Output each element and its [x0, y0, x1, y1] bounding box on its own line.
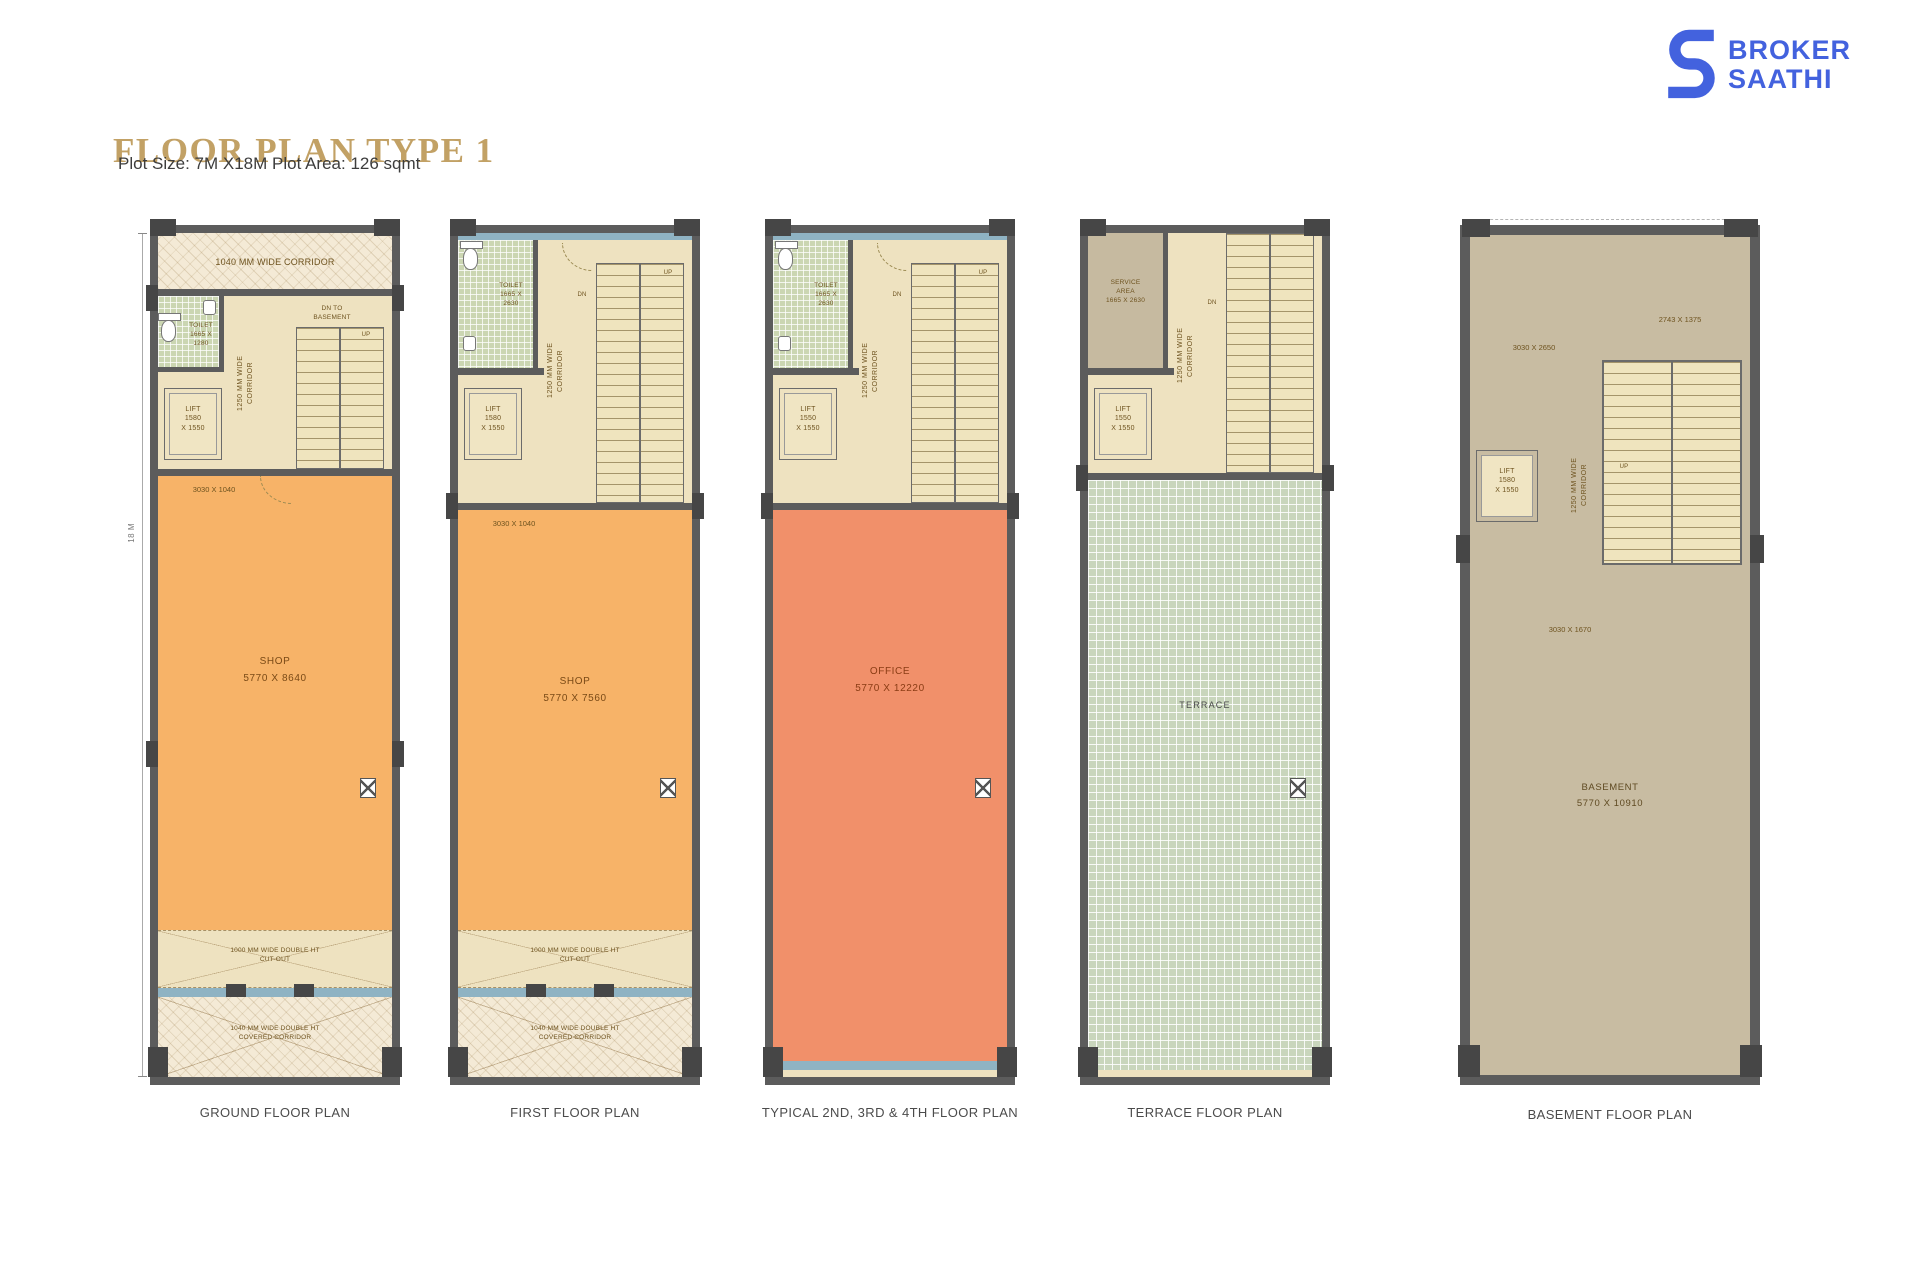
- riser-box-icon: [1290, 778, 1306, 798]
- logo-line2: SAATHI: [1728, 65, 1851, 93]
- column-block: [1456, 535, 1470, 563]
- glazing-strip: [773, 233, 1007, 240]
- top-dimension-dash: [1470, 219, 1750, 220]
- office-area: [773, 510, 1007, 1061]
- toilet-wc-icon: [161, 320, 176, 342]
- covered-corridor-label: 1040 MM WIDE DOUBLE HT COVERED CORRIDOR: [158, 1025, 392, 1043]
- column-block: [1304, 219, 1330, 236]
- lift-label: LIFT 1550 X 1550: [1094, 405, 1152, 433]
- entrance-corridor-label: 1040 MM WIDE CORRIDOR: [158, 256, 392, 268]
- covered-corridor: 1040 MM WIDE DOUBLE HT COVERED CORRIDOR: [158, 997, 392, 1077]
- glazing-strip: [773, 1061, 1007, 1070]
- logo-line1: BROKER: [1728, 36, 1851, 64]
- terrace-floor-plan: SERVICE AREA 1665 X 2630 LIFT 1550 X 155…: [1080, 225, 1330, 1085]
- plan-caption: GROUND FLOOR PLAN: [138, 1105, 412, 1120]
- dn-to-basement-label: DN TO BASEMENT: [280, 305, 384, 323]
- first-floor-plan: TOILET 1665 X 2630 LIFT 1580 X 1550 1250…: [450, 225, 700, 1085]
- column-block: [1007, 493, 1019, 519]
- plan-caption: BASEMENT FLOOR PLAN: [1450, 1107, 1770, 1122]
- toilet-label: TOILET 1665 X 2630: [803, 282, 849, 308]
- column-block: [1724, 219, 1758, 237]
- office-label: OFFICE 5770 X 12220: [773, 663, 1007, 697]
- double-height-cutout: 1000 MM WIDE DOUBLE HT CUT-OUT: [158, 930, 392, 988]
- column-block: [1080, 219, 1106, 236]
- shop-area: [158, 476, 392, 930]
- column-block: [761, 493, 773, 519]
- door-arc: [877, 243, 907, 271]
- dimension-tick: [138, 1076, 147, 1077]
- terrace-label: TERRACE: [1088, 698, 1322, 713]
- column-block: [1078, 1047, 1098, 1077]
- plot-size-subtitle: Plot Size: 7M X18M Plot Area: 126 sqmt: [118, 154, 420, 174]
- wall: [158, 289, 392, 296]
- stair-divider: [1269, 234, 1271, 472]
- lift-label: LIFT 1580 X 1550: [1476, 467, 1538, 495]
- up-label: UP: [656, 269, 680, 277]
- brokersaathi-monogram-icon: [1660, 24, 1722, 105]
- column-block: [446, 493, 458, 519]
- column-block: [382, 1047, 402, 1077]
- glazing-strip: [458, 988, 692, 997]
- staircase: [1226, 233, 1314, 473]
- column-block: [448, 1047, 468, 1077]
- column-block: [763, 1047, 783, 1077]
- column-block: [682, 1047, 702, 1077]
- plot-depth-label: 18 M: [126, 523, 137, 543]
- column-block: [997, 1047, 1017, 1077]
- logo-text: BROKER SAATHI: [1728, 36, 1851, 93]
- stair-divider: [954, 264, 956, 502]
- toilet-sink-icon: [203, 300, 216, 315]
- toilet-sink-icon: [463, 336, 476, 351]
- column-block: [1322, 465, 1334, 491]
- lift-label: LIFT 1550 X 1550: [779, 405, 837, 433]
- basement-dim-left: 3030 X 2650: [1482, 343, 1586, 352]
- wall: [458, 503, 692, 510]
- column-block: [146, 285, 158, 311]
- wall: [773, 368, 859, 375]
- terrace-area: [1088, 480, 1322, 1070]
- corridor-label: 1250 MM WIDE CORRIDOR: [1570, 400, 1590, 570]
- corridor-label: 1250 MM WIDE CORRIDOR: [546, 278, 566, 463]
- toilet-sink-icon: [778, 336, 791, 351]
- column-block: [1458, 1045, 1480, 1077]
- service-area-label: SERVICE AREA 1665 X 2630: [1092, 279, 1159, 305]
- ground-floor-plan: 18 M 1040 MM WIDE CORRIDOR TOILET 1665 X…: [150, 225, 400, 1085]
- toilet-room: TOILET 1665 X 2630: [773, 240, 853, 368]
- shop-label: SHOP 5770 X 7560: [458, 673, 692, 707]
- dimension-tick: [138, 233, 147, 234]
- lift-label: LIFT 1580 X 1550: [464, 405, 522, 433]
- corridor-label: 1250 MM WIDE CORRIDOR: [236, 303, 256, 463]
- covered-corridor: 1040 MM WIDE DOUBLE HT COVERED CORRIDOR: [458, 997, 692, 1077]
- corridor-label: 1250 MM WIDE CORRIDOR: [1176, 258, 1196, 453]
- toilet-wc-icon: [463, 248, 478, 270]
- toilet-label: TOILET 1665 X 2630: [488, 282, 534, 308]
- plan-caption: TERRACE FLOOR PLAN: [1068, 1105, 1342, 1120]
- column-block: [450, 219, 476, 236]
- cutout-label: 1000 MM WIDE DOUBLE HT CUT-OUT: [158, 947, 392, 965]
- riser-box-icon: [360, 778, 376, 798]
- up-label: UP: [354, 331, 378, 339]
- toilet-room: TOILET 1665 X 1280: [158, 296, 224, 372]
- corridor-label: 1250 MM WIDE CORRIDOR: [861, 278, 881, 463]
- column-block: [146, 741, 158, 767]
- column-block: [148, 1047, 168, 1077]
- up-label: UP: [971, 269, 995, 277]
- cutout-label: 1000 MM WIDE DOUBLE HT CUT-OUT: [458, 947, 692, 965]
- stair-divider: [639, 264, 641, 502]
- covered-corridor-label: 1040 MM WIDE DOUBLE HT COVERED CORRIDOR: [458, 1025, 692, 1043]
- double-height-cutout: 1000 MM WIDE DOUBLE HT CUT-OUT: [458, 930, 692, 988]
- basement-dim-top: 2743 X 1375: [1620, 315, 1740, 324]
- floor-plan-page: FLOOR PLAN TYPE 1 Plot Size: 7M X18M Plo…: [0, 0, 1920, 1280]
- toilet-label: TOILET 1665 X 1280: [180, 322, 222, 348]
- staircase: [911, 263, 999, 503]
- wall: [1088, 368, 1174, 375]
- dn-label: DN: [570, 291, 594, 299]
- staircase: [596, 263, 684, 503]
- lift-label: LIFT 1580 X 1550: [164, 405, 222, 433]
- plan-caption: TYPICAL 2ND, 3RD & 4TH FLOOR PLAN: [753, 1105, 1027, 1120]
- column-block: [692, 493, 704, 519]
- glazing-strip: [458, 233, 692, 240]
- stair-divider: [339, 328, 341, 468]
- column-block: [1740, 1045, 1762, 1077]
- shop-area: [458, 510, 692, 930]
- column-block: [674, 219, 700, 236]
- column-block: [989, 219, 1015, 236]
- opening-dimension: 3030 X 1040: [468, 519, 560, 528]
- dn-label: DN: [1200, 299, 1224, 307]
- service-area: SERVICE AREA 1665 X 2630: [1088, 233, 1168, 368]
- column-block: [374, 219, 400, 236]
- column-block: [392, 285, 404, 311]
- column-block: [1750, 535, 1764, 563]
- stair-divider: [1671, 362, 1673, 563]
- toilet-room: TOILET 1665 X 2630: [458, 240, 538, 368]
- column-block: [392, 741, 404, 767]
- brokersaathi-logo: BROKER SAATHI: [1660, 24, 1851, 105]
- typical-floor-plan: TOILET 1665 X 2630 LIFT 1550 X 1550 1250…: [765, 225, 1015, 1085]
- wall: [158, 469, 392, 476]
- column-block: [1462, 219, 1490, 237]
- column-block: [765, 219, 791, 236]
- wall: [1088, 473, 1322, 480]
- shop-label: SHOP 5770 X 8640: [158, 653, 392, 687]
- up-label: UP: [1612, 463, 1636, 471]
- column-block: [1312, 1047, 1332, 1077]
- toilet-wc-icon: [778, 248, 793, 270]
- wall: [458, 368, 544, 375]
- riser-box-icon: [975, 778, 991, 798]
- basement-dim-mid: 3030 X 1670: [1510, 625, 1630, 634]
- plan-caption: FIRST FLOOR PLAN: [438, 1105, 712, 1120]
- dimension-line: [142, 233, 143, 1077]
- glazing-strip: [158, 988, 392, 997]
- basement-floor-plan: 2743 X 1375 3030 X 2650 1250 MM WIDE COR…: [1460, 225, 1760, 1085]
- dn-label: DN: [885, 291, 909, 299]
- staircase: [296, 327, 384, 469]
- riser-box-icon: [660, 778, 676, 798]
- column-block: [1076, 465, 1088, 491]
- column-block: [150, 219, 176, 236]
- door-arc: [562, 243, 592, 271]
- basement-label: BASEMENT 5770 X 10910: [1470, 780, 1750, 812]
- opening-dimension: 3030 X 1040: [168, 485, 260, 494]
- wall: [773, 503, 1007, 510]
